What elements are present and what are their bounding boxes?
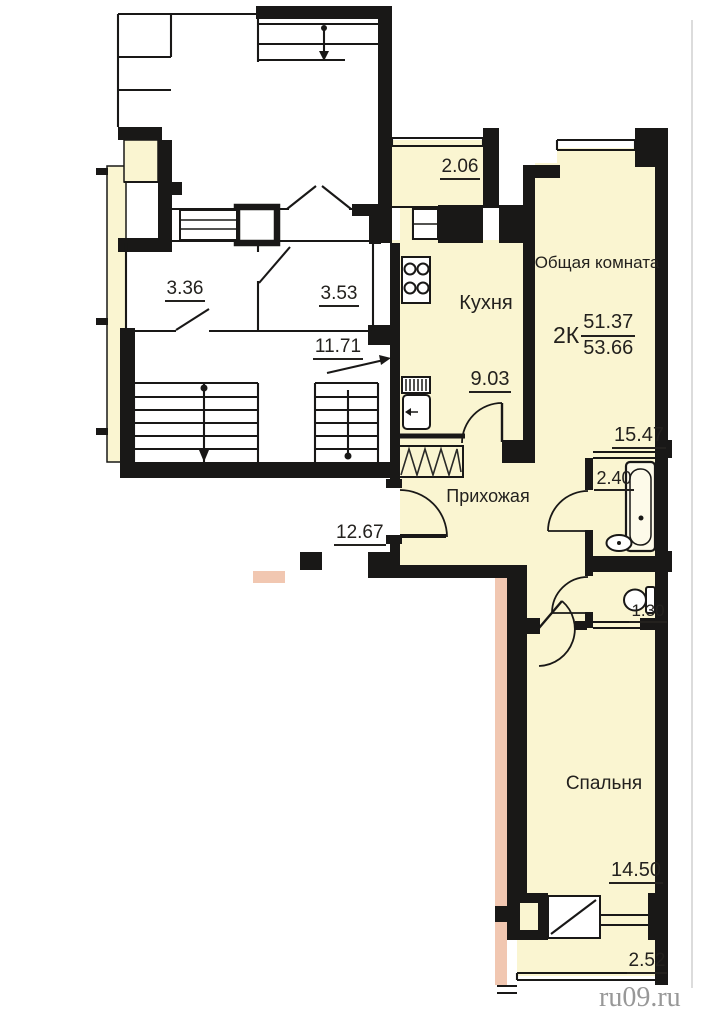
- door-leaf-336: [176, 309, 209, 330]
- room-label-living: Общая комната: [530, 254, 664, 272]
- apartment-living-area: 51.37: [581, 311, 635, 337]
- room-label-bedroom: Спальня: [560, 774, 648, 794]
- floor-plan-drawing: [0, 0, 714, 1024]
- area-label-living: 15.47: [612, 425, 662, 449]
- room-label-kitchen: Кухня: [450, 293, 522, 314]
- stairwell-area-b: 3.53: [316, 284, 362, 307]
- stove-icon: [402, 257, 430, 303]
- stairs-left-flight: [134, 383, 258, 462]
- balcony-door: [548, 896, 600, 938]
- label-loggia-area: 2.06: [436, 157, 484, 180]
- living-room-floor: [535, 163, 655, 455]
- area-label-wc: 1.30: [629, 602, 667, 623]
- area-label-kitchen: 9.03: [466, 369, 514, 393]
- door-leaf-353: [259, 247, 290, 283]
- area-label-balcony: 2.52: [624, 951, 670, 974]
- door-stairwell-entry: [287, 186, 351, 209]
- area-label-bathroom: 2.40: [594, 469, 634, 491]
- sink-icon: [402, 377, 430, 429]
- room-label-hallway: Прихожая: [440, 487, 536, 506]
- stairwell-area-a: 3.36: [160, 279, 210, 302]
- apartment-summary: 2К 51.37 53.66: [553, 311, 635, 360]
- shaft-icon: [180, 210, 237, 240]
- area-label-hallway: 12.67: [334, 523, 384, 546]
- floor-plan: 2.06 Кухня 9.03 Общая комната 2К 51.37 5…: [0, 0, 714, 1024]
- watermark: ru09.ru: [599, 982, 681, 1014]
- area-label-bedroom: 14.50: [609, 860, 661, 884]
- apartment-type: 2К: [553, 322, 579, 349]
- washbasin-icon: [607, 535, 632, 551]
- stairwell-landing-area: 11.71: [312, 337, 364, 360]
- apartment-total-area: 53.66: [583, 337, 633, 360]
- stairs-right-flight: [315, 355, 391, 462]
- neighbor-walls: [253, 571, 507, 985]
- elevator-icon: [237, 207, 277, 243]
